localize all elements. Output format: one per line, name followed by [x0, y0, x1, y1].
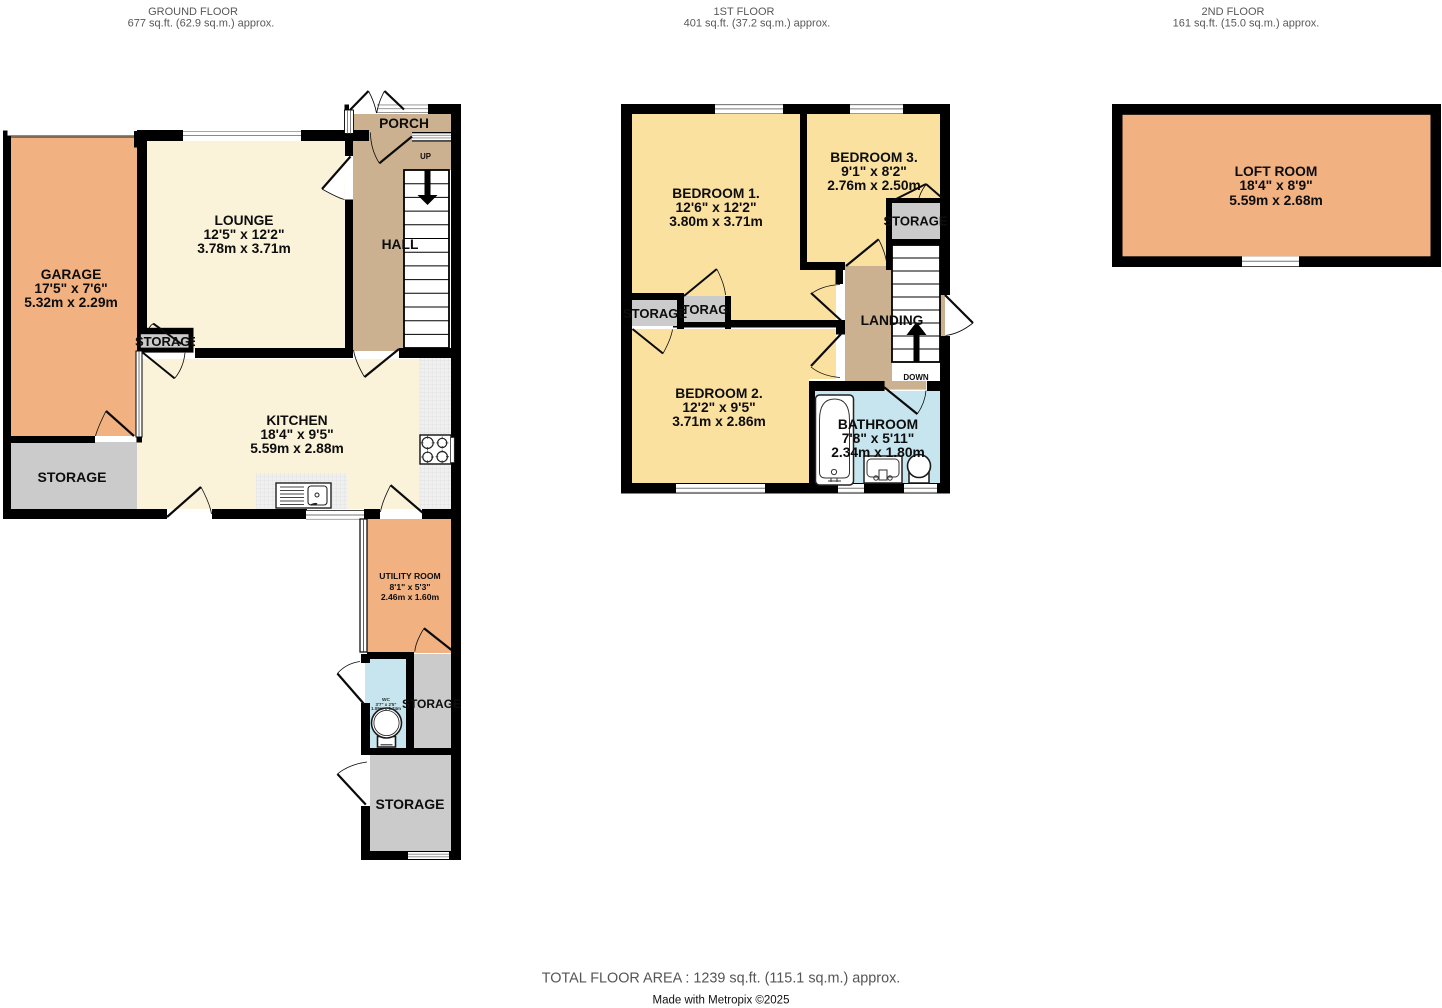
svg-text:12'2" x 9'5": 12'2" x 9'5"	[682, 400, 755, 415]
svg-text:BEDROOM 1.: BEDROOM 1.	[672, 186, 759, 201]
svg-text:2ND FLOOR: 2ND FLOOR	[1202, 6, 1265, 18]
svg-text:2.76m x 2.50m: 2.76m x 2.50m	[827, 178, 921, 193]
svg-text:GROUND FLOOR: GROUND FLOOR	[148, 6, 238, 18]
svg-text:STORAGE: STORAGE	[38, 469, 107, 485]
svg-text:5.32m x 2.29m: 5.32m x 2.29m	[24, 295, 118, 310]
svg-text:17'5" x 7'6": 17'5" x 7'6"	[34, 281, 107, 296]
svg-text:BEDROOM 3.: BEDROOM 3.	[830, 150, 917, 165]
svg-text:STORAGE: STORAGE	[883, 214, 947, 229]
svg-text:3.78m x 3.71m: 3.78m x 3.71m	[197, 241, 291, 256]
svg-text:STORAGE: STORAGE	[135, 334, 199, 349]
svg-text:HALL: HALL	[382, 237, 419, 252]
svg-text:DOWN: DOWN	[903, 373, 929, 382]
svg-text:401 sq.ft. (37.2 sq.m.) approx: 401 sq.ft. (37.2 sq.m.) approx.	[684, 18, 831, 30]
svg-text:3.80m x 3.71m: 3.80m x 3.71m	[669, 214, 763, 229]
svg-text:5.59m x 2.88m: 5.59m x 2.88m	[250, 441, 344, 456]
svg-text:3.71m x 2.86m: 3.71m x 2.86m	[672, 414, 766, 429]
svg-text:1.09m x 0.74m: 1.09m x 0.74m	[371, 706, 401, 711]
svg-text:TOTAL FLOOR AREA : 1239 sq.ft.: TOTAL FLOOR AREA : 1239 sq.ft. (115.1 sq…	[542, 971, 901, 987]
svg-text:BATHROOM: BATHROOM	[838, 417, 918, 432]
svg-text:Made with Metropix ©2025: Made with Metropix ©2025	[653, 995, 790, 1007]
svg-text:BEDROOM 2.: BEDROOM 2.	[675, 386, 762, 401]
svg-text:LOFT ROOM: LOFT ROOM	[1235, 164, 1318, 179]
svg-text:2.34m x 1.80m: 2.34m x 1.80m	[831, 445, 925, 460]
svg-text:LANDING: LANDING	[861, 313, 924, 328]
svg-text:STORAGE: STORAGE	[376, 796, 445, 812]
svg-text:PORCH: PORCH	[379, 116, 429, 131]
svg-text:18'4" x 8'9": 18'4" x 8'9"	[1239, 178, 1312, 193]
svg-text:STORAGE: STORAGE	[673, 302, 737, 317]
svg-text:677 sq.ft. (62.9 sq.m.) approx: 677 sq.ft. (62.9 sq.m.) approx.	[128, 18, 275, 30]
svg-text:5.59m x 2.68m: 5.59m x 2.68m	[1229, 193, 1323, 208]
svg-text:161 sq.ft. (15.0 sq.m.) approx: 161 sq.ft. (15.0 sq.m.) approx.	[1173, 18, 1320, 30]
svg-text:GARAGE: GARAGE	[41, 267, 102, 282]
svg-text:KITCHEN: KITCHEN	[266, 413, 327, 428]
svg-text:UP: UP	[420, 152, 431, 161]
svg-text:2.46m x 1.60m: 2.46m x 1.60m	[381, 592, 440, 602]
svg-text:7'8" x 5'11": 7'8" x 5'11"	[842, 431, 915, 446]
svg-text:STORAGE: STORAGE	[402, 697, 461, 711]
svg-text:18'4" x 9'5": 18'4" x 9'5"	[260, 427, 333, 442]
svg-text:1ST FLOOR: 1ST FLOOR	[714, 6, 775, 18]
svg-text:12'6" x 12'2": 12'6" x 12'2"	[675, 200, 756, 215]
svg-text:STORAGE: STORAGE	[623, 306, 687, 321]
svg-text:12'5" x 12'2": 12'5" x 12'2"	[203, 227, 284, 242]
svg-text:9'1" x 8'2": 9'1" x 8'2"	[841, 164, 907, 179]
svg-text:8'1" x 5'3": 8'1" x 5'3"	[390, 582, 431, 592]
svg-text:LOUNGE: LOUNGE	[214, 213, 273, 228]
svg-text:UTILITY ROOM: UTILITY ROOM	[379, 571, 440, 581]
